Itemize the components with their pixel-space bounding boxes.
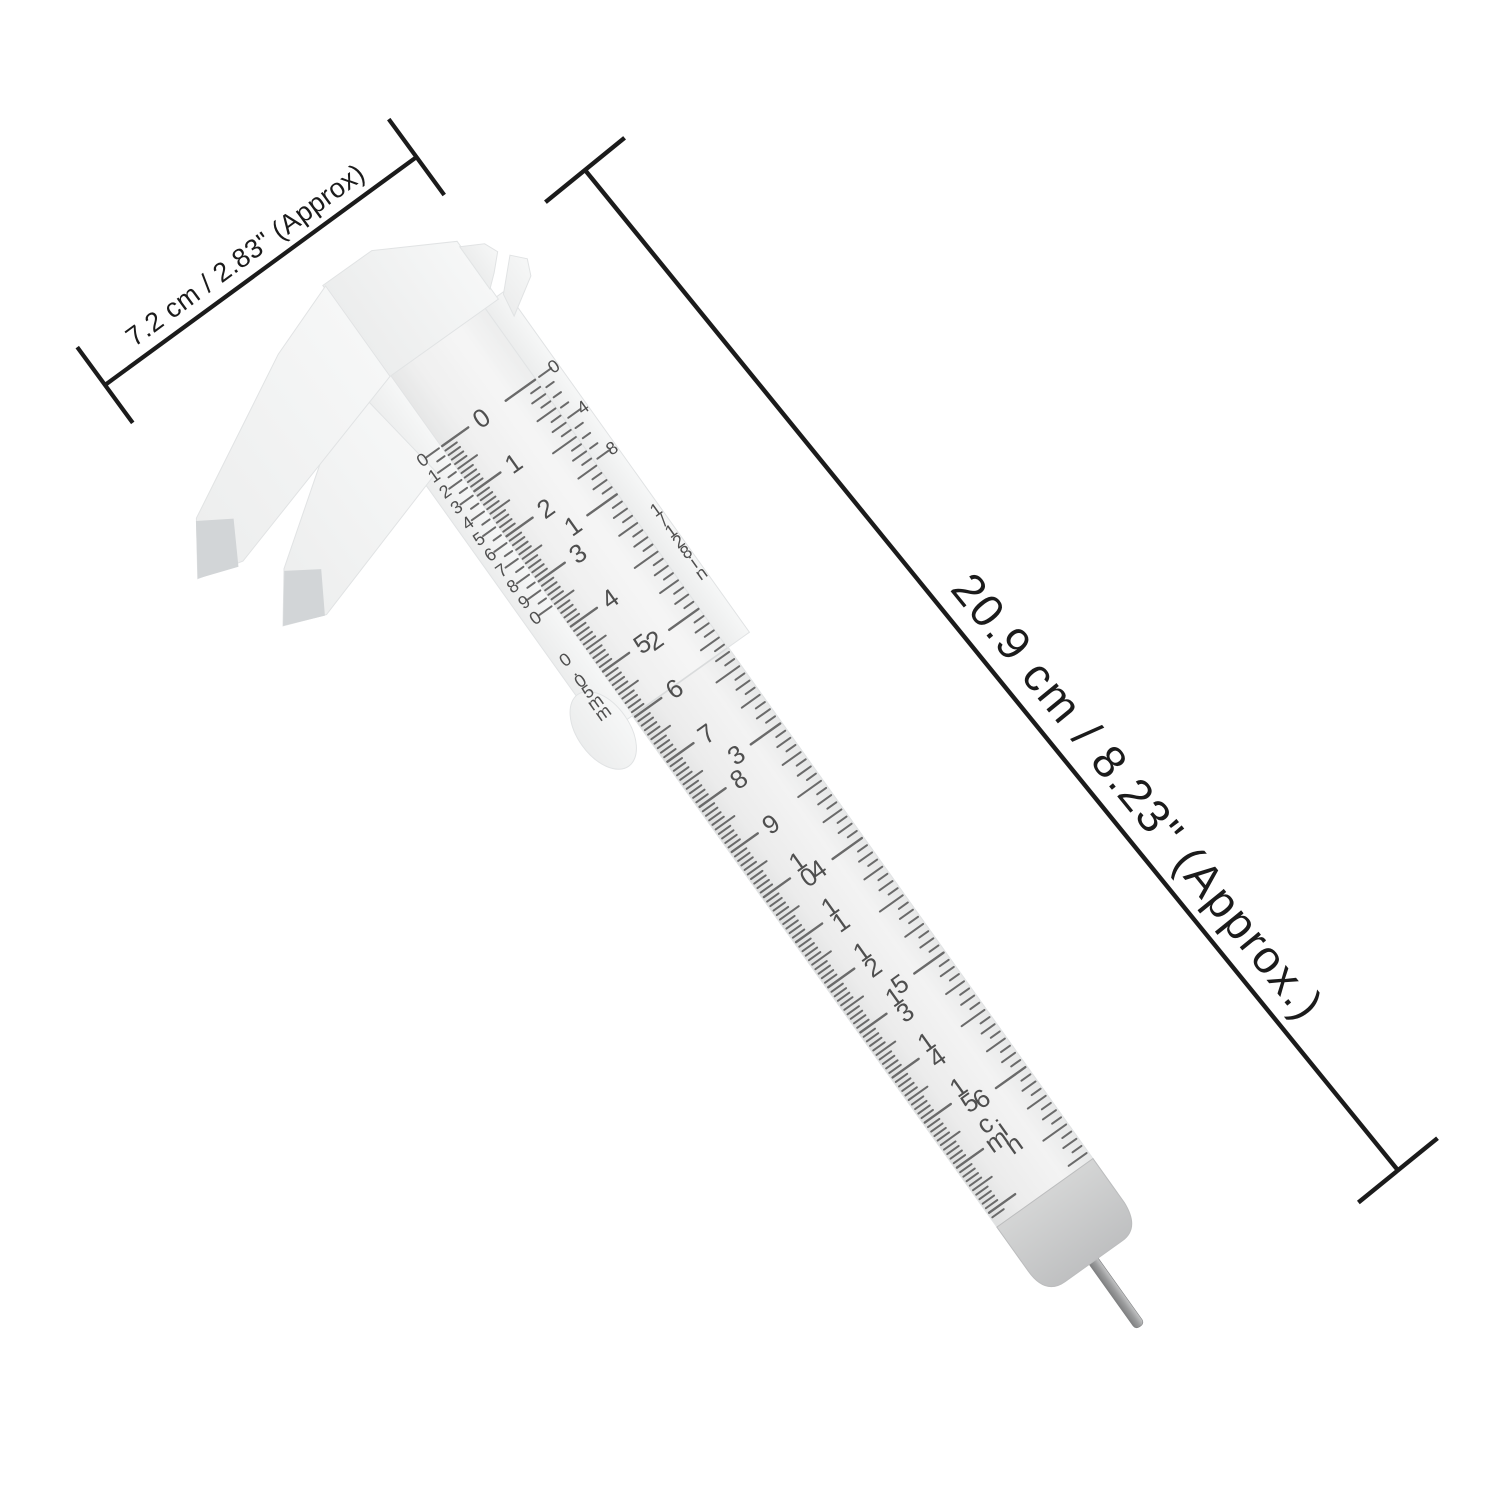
length-dimension-label: 20.9 cm / 8.23" (Approx.) — [941, 563, 1334, 1030]
width-dimension-tick-start — [77, 347, 133, 423]
length-dimension-tick-start — [545, 138, 624, 202]
width-dimension-tick-end — [389, 119, 445, 195]
length-dimension-tick-end — [1358, 1138, 1437, 1202]
product-image: 0123456789101112131415cm 123456in 012345… — [0, 0, 1500, 1500]
caliper-illustration: 0123456789101112131415cm 123456in 012345… — [101, 180, 1238, 1500]
